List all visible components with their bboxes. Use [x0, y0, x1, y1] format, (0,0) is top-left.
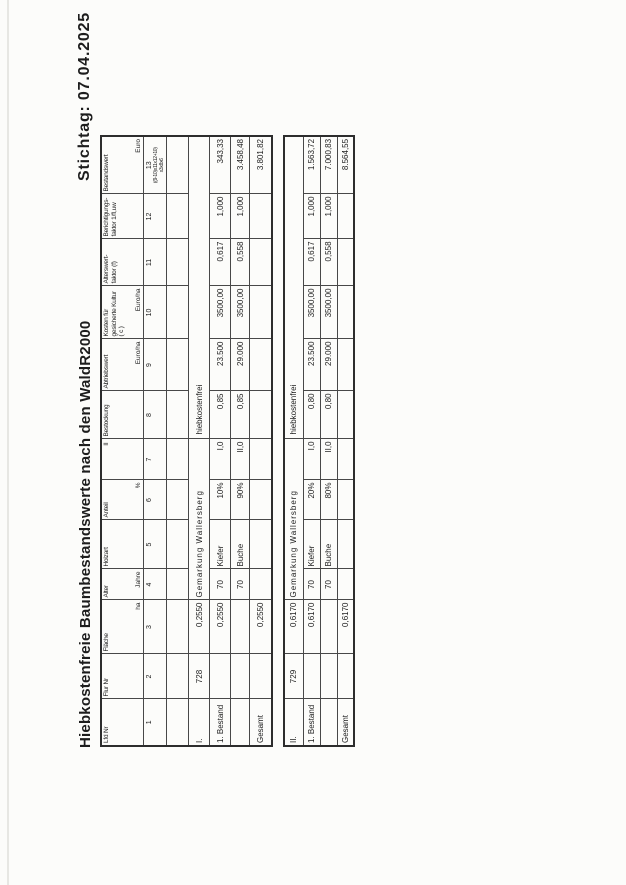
header-unit: Euro/ha	[135, 342, 142, 365]
col-header-bestockung: Bestockung	[101, 391, 143, 439]
empty-cell	[337, 480, 354, 520]
empty-cell	[250, 286, 272, 339]
empty-cell	[337, 194, 354, 239]
bestandswert-value: 1.563,72	[303, 136, 320, 194]
col-number: 7	[143, 439, 167, 480]
header-label: Berichtigungs- faktor 1/fl,uw	[102, 197, 118, 237]
empty-cell	[320, 600, 337, 654]
ertragsklasse-value: I,0	[210, 439, 231, 480]
bestand-row: 1. Bestand 0,2550 70 Kiefer 10% I,0 0,85…	[210, 136, 231, 746]
col-header-alterswertfaktor: Alterswert- faktor (f)	[101, 239, 143, 286]
col-number: 9	[143, 339, 167, 391]
col-number: 5	[143, 520, 167, 569]
row-label: 1. Bestand	[210, 699, 231, 746]
row-label: 1. Bestand	[303, 699, 320, 746]
section-row: I. 728 0,2550 Gemarkung Wallersberg hieb…	[189, 136, 210, 746]
col-header-flaeche: Flächeha	[101, 600, 143, 654]
header-label: II	[102, 442, 111, 478]
empty-cell	[337, 286, 354, 339]
col-header-bestandswert: BestandswertEuro	[101, 136, 143, 194]
empty-cell	[167, 391, 189, 439]
header-label: Abtriebswert	[102, 342, 111, 389]
header-label: Anteil	[102, 483, 111, 518]
section-id: II.	[284, 699, 303, 746]
header-number-row: 1 2 3 4 5 6 7 8 9 10 11 12 13 ((9-10)x11…	[143, 136, 167, 746]
header-unit: Euro	[135, 139, 142, 153]
gesamt-row: Gesamt 0,2550 3.801,82	[250, 136, 272, 746]
header-label: Bestandswert	[102, 139, 111, 192]
empty-cell	[337, 654, 354, 699]
empty-cell	[250, 194, 272, 239]
empty-cell	[337, 569, 354, 600]
alterswertfaktor-value: 0,617	[210, 239, 231, 286]
gesamt-row: Gesamt 0,6170 8.564,55	[337, 136, 354, 746]
bestand-row: 1. Bestand 0,6170 70 Kiefer 20% I,0 0,80…	[303, 136, 320, 746]
empty-cell	[231, 654, 250, 699]
empty-cell	[167, 136, 189, 194]
ertragsklasse-value: I,0	[303, 439, 320, 480]
flaeche-value: 0,2550	[189, 600, 210, 654]
alter-value: 70	[320, 569, 337, 600]
gesamt-label: Gesamt	[250, 699, 272, 746]
col-number: 8	[143, 391, 167, 439]
flur-nr-value: 728	[189, 654, 210, 699]
empty-cell	[210, 654, 231, 699]
flaeche-value: 0,2550	[210, 600, 231, 654]
scanned-document-page: { "page": { "title": "Hiebkostenfreie Ba…	[0, 0, 626, 885]
kosten-value: 3500,00	[231, 286, 250, 339]
hiebkostenfrei-note: hiebkostenfrei	[284, 136, 303, 439]
bestockung-value: 0,80	[320, 391, 337, 439]
header-unit: Euro/ha	[135, 289, 142, 312]
alterswertfaktor-value: 0,558	[320, 239, 337, 286]
empty-cell	[250, 339, 272, 391]
col-number: 13	[146, 139, 153, 192]
col-header-holzart: Holzart	[101, 520, 143, 569]
gemarkung-value: Gemarkung Wallersberg	[189, 439, 210, 600]
col-number: 12	[143, 194, 167, 239]
col-header-anteil: Anteil%	[101, 480, 143, 520]
header-label: Lfd Nr	[102, 702, 111, 744]
page-title: Hiebkostenfreie Baumbestandswerte nach d…	[77, 321, 94, 748]
gemarkung-value: Gemarkung Wallersberg	[284, 439, 303, 600]
empty-cell	[167, 194, 189, 239]
empty-cell	[250, 654, 272, 699]
header-label: Kosten für gesicherte Kultur ( c )	[102, 289, 126, 337]
empty-cell	[250, 520, 272, 569]
col-number: 11	[143, 239, 167, 286]
empty-cell	[167, 699, 189, 746]
berichtigungsfaktor-value: 1,000	[320, 194, 337, 239]
empty-cell	[167, 654, 189, 699]
col-header-flur-nr: Flur Nr	[101, 654, 143, 699]
col-number: 6	[143, 480, 167, 520]
col-number: 4	[143, 569, 167, 600]
gesamt-bestandswert: 8.564,55	[337, 136, 354, 194]
abtriebswert-value: 29.000	[320, 339, 337, 391]
empty-cell	[337, 391, 354, 439]
berichtigungsfaktor-value: 1,000	[231, 194, 250, 239]
header-label: Alterswert- faktor (f)	[102, 242, 118, 284]
header-label: Holzart	[102, 523, 111, 567]
berichtigungsfaktor-value: 1,000	[303, 194, 320, 239]
header-unit: ha	[135, 603, 142, 610]
rotated-sheet: Hiebkostenfreie Baumbestandswerte nach d…	[0, 0, 626, 885]
header-unit: Jahre	[135, 572, 142, 588]
anteil-value: 90%	[231, 480, 250, 520]
alter-value: 70	[210, 569, 231, 600]
empty-cell	[303, 654, 320, 699]
flur-nr-value: 729	[284, 654, 303, 699]
bestandswerte-table-section-2: II. 729 0,6170 Gemarkung Wallersberg hie…	[283, 135, 355, 747]
empty-cell	[250, 439, 272, 480]
header-label: Fläche	[102, 603, 111, 652]
stichtag-date: Stichtag: 07.04.2025	[76, 12, 94, 181]
empty-cell	[167, 239, 189, 286]
empty-cell	[167, 439, 189, 480]
section-row: II. 729 0,6170 Gemarkung Wallersberg hie…	[284, 136, 303, 746]
kosten-value: 3500,00	[210, 286, 231, 339]
col-number: 2	[143, 654, 167, 699]
empty-cell	[337, 439, 354, 480]
spacer-row	[167, 136, 189, 746]
empty-cell	[167, 569, 189, 600]
kosten-value: 3500,00	[303, 286, 320, 339]
alter-value: 70	[303, 569, 320, 600]
col-number: 10	[143, 286, 167, 339]
holzart-value: Kiefer	[210, 520, 231, 569]
empty-cell	[167, 286, 189, 339]
col-header-alter: AlterJahre	[101, 569, 143, 600]
gesamt-bestandswert: 3.801,82	[250, 136, 272, 194]
bestandswerte-table-section-1: Lfd Nr Flur Nr Flächeha AlterJahre Holza…	[100, 135, 273, 747]
col-number: 3	[143, 600, 167, 654]
col-header-abtriebswert: AbtriebswertEuro/ha	[101, 339, 143, 391]
empty-cell	[337, 339, 354, 391]
berichtigungsfaktor-value: 1,000	[210, 194, 231, 239]
empty-cell	[320, 654, 337, 699]
col-header-ertragsklasse: II	[101, 439, 143, 480]
empty-cell	[167, 520, 189, 569]
empty-cell	[231, 699, 250, 746]
abtriebswert-value: 23.500	[210, 339, 231, 391]
title-row: Hiebkostenfreie Baumbestandswerte nach d…	[76, 12, 94, 748]
holzart-value: Kiefer	[303, 520, 320, 569]
bestockung-value: 0,80	[303, 391, 320, 439]
holzart-value: Buche	[231, 520, 250, 569]
flaeche-value: 0,6170	[284, 600, 303, 654]
empty-cell	[167, 339, 189, 391]
gesamt-flaeche: 0,2550	[250, 600, 272, 654]
header-label: Bestockung	[102, 394, 111, 437]
gesamt-flaeche: 0,6170	[337, 600, 354, 654]
kosten-value: 3500,00	[320, 286, 337, 339]
bestockung-value: 0,85	[231, 391, 250, 439]
bestandswert-value: 3.458,48	[231, 136, 250, 194]
ertragsklasse-value: II,0	[320, 439, 337, 480]
anteil-value: 80%	[320, 480, 337, 520]
header-unit: %	[135, 483, 142, 489]
hiebkostenfrei-note: hiebkostenfrei	[189, 136, 210, 439]
alter-value: 70	[231, 569, 250, 600]
anteil-value: 20%	[303, 480, 320, 520]
header-label: Flur Nr	[102, 657, 111, 697]
bestandswert-value: 7.000,83	[320, 136, 337, 194]
header-label-row: Lfd Nr Flur Nr Flächeha AlterJahre Holza…	[101, 136, 143, 746]
section-id: I.	[189, 699, 210, 746]
bestandswert-formula-line2: x3x8x6	[160, 139, 166, 192]
empty-cell	[250, 480, 272, 520]
col-header-lfd-nr: Lfd Nr	[101, 699, 143, 746]
col-header-kosten-kultur: Kosten für gesicherte Kultur ( c )Euro/h…	[101, 286, 143, 339]
bestand-row: 70 Buche 90% II,0 0,85 29.000 3500,00 0,…	[231, 136, 250, 746]
empty-cell	[231, 600, 250, 654]
ertragsklasse-value: II,0	[231, 439, 250, 480]
anteil-value: 10%	[210, 480, 231, 520]
gesamt-label: Gesamt	[337, 699, 354, 746]
empty-cell	[337, 239, 354, 286]
bestand-row: 70 Buche 80% II,0 0,80 29.000 3500,00 0,…	[320, 136, 337, 746]
flaeche-value: 0,6170	[303, 600, 320, 654]
abtriebswert-value: 23.500	[303, 339, 320, 391]
alterswertfaktor-value: 0,617	[303, 239, 320, 286]
empty-cell	[167, 480, 189, 520]
empty-cell	[167, 600, 189, 654]
alterswertfaktor-value: 0,558	[231, 239, 250, 286]
header-label: Alter	[102, 572, 111, 598]
col-number: 1	[143, 699, 167, 746]
holzart-value: Buche	[320, 520, 337, 569]
empty-cell	[250, 569, 272, 600]
empty-cell	[250, 239, 272, 286]
empty-cell	[320, 699, 337, 746]
col-number-with-formula: 13 ((9-10)x11x12+10) x3x8x6	[143, 136, 167, 194]
empty-cell	[250, 391, 272, 439]
col-header-berichtigungsfaktor: Berichtigungs- faktor 1/fl,uw	[101, 194, 143, 239]
bestandswert-value: 343,33	[210, 136, 231, 194]
empty-cell	[337, 520, 354, 569]
bestockung-value: 0,85	[210, 391, 231, 439]
abtriebswert-value: 29.000	[231, 339, 250, 391]
